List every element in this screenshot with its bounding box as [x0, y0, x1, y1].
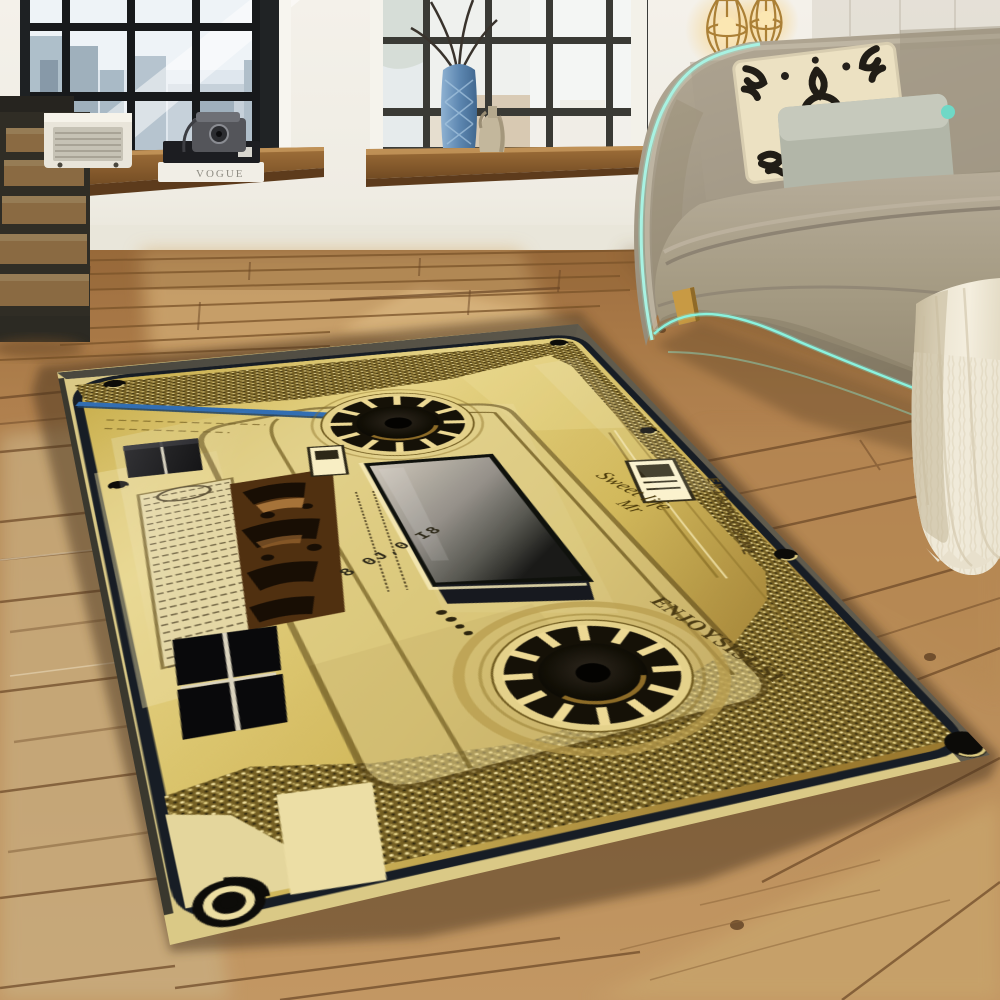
svg-text:VOGUE: VOGUE: [196, 168, 245, 180]
